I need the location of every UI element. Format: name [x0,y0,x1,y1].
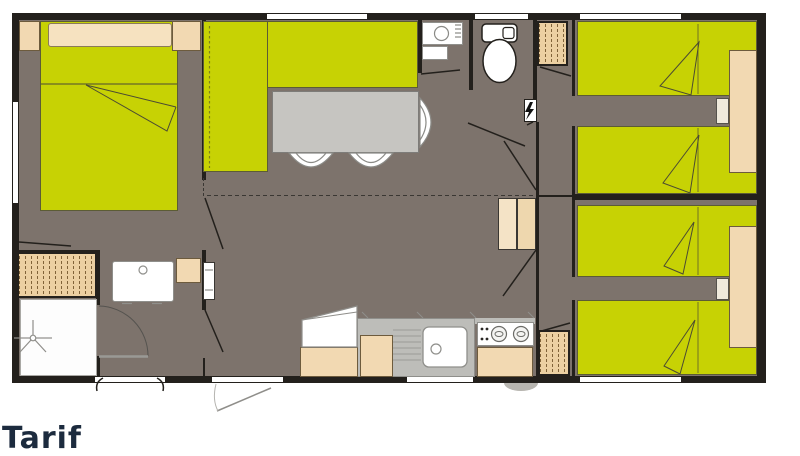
bed-connector-bottom [716,278,729,300]
corridor-cabinet-left [498,198,517,250]
window-master-left [12,102,19,203]
electrical-panel [524,99,537,122]
wardrobe-bottom-right [538,330,570,376]
entrance-door-swing [214,384,271,411]
outer-wall-right [757,13,766,383]
wall-washroom-left [418,20,422,73]
washroom-counter [422,46,448,60]
wall-bedroom-bottom-b [572,300,575,377]
wardrobe-bathroom [17,252,97,298]
nightstand-left [19,21,40,51]
corridor-cabinet-right [517,198,536,250]
watermark-text: Tarif [2,421,82,456]
entrance-opening-1 [95,376,165,383]
bathroom-cabinet [176,258,201,283]
nightstand-right [172,21,201,51]
double-bed [40,21,178,211]
wall-between-twin-bedrooms [572,194,757,200]
wall-hall-stub [203,358,205,377]
bed-connector-top [716,98,729,124]
sofa-vertical-arm [203,21,268,172]
double-bed-pillow [48,23,172,47]
sofa-horizontal-arm [267,21,418,88]
bathroom-washbasin [112,261,174,302]
window-bedroom-top [580,13,681,20]
bathroom-radiator [203,262,215,300]
window-bedroom-bottom [580,376,681,383]
window-wc-top [475,13,528,20]
headboard-top-room [729,50,757,173]
headboard-bottom-room [729,226,757,348]
shower-tray [20,299,97,376]
kitchen-cabinet-3 [477,347,533,377]
stove-hob [477,322,534,346]
exterior-step [504,383,538,391]
window-kitchen-bottom [407,376,473,383]
wall-washroom-wc [469,20,473,90]
washbasin-vanity-top [422,22,463,45]
kitchen-cabinet-2 [360,335,393,377]
dining-table [272,91,419,153]
wall-bedroom-top-a [572,20,575,96]
wardrobe-top-right [537,21,568,66]
entrance-opening-2 [212,376,283,383]
wall-bedroom-top-b [572,126,575,194]
wall-corridor-cross [537,195,573,197]
kitchen-cabinet-1 [300,347,358,377]
wall-bedroom-bottom-a [572,200,575,277]
floorplan-page: { "watermark": { "text": "Tarif" }, "pal… [0,0,800,443]
window-living-top [267,13,367,20]
